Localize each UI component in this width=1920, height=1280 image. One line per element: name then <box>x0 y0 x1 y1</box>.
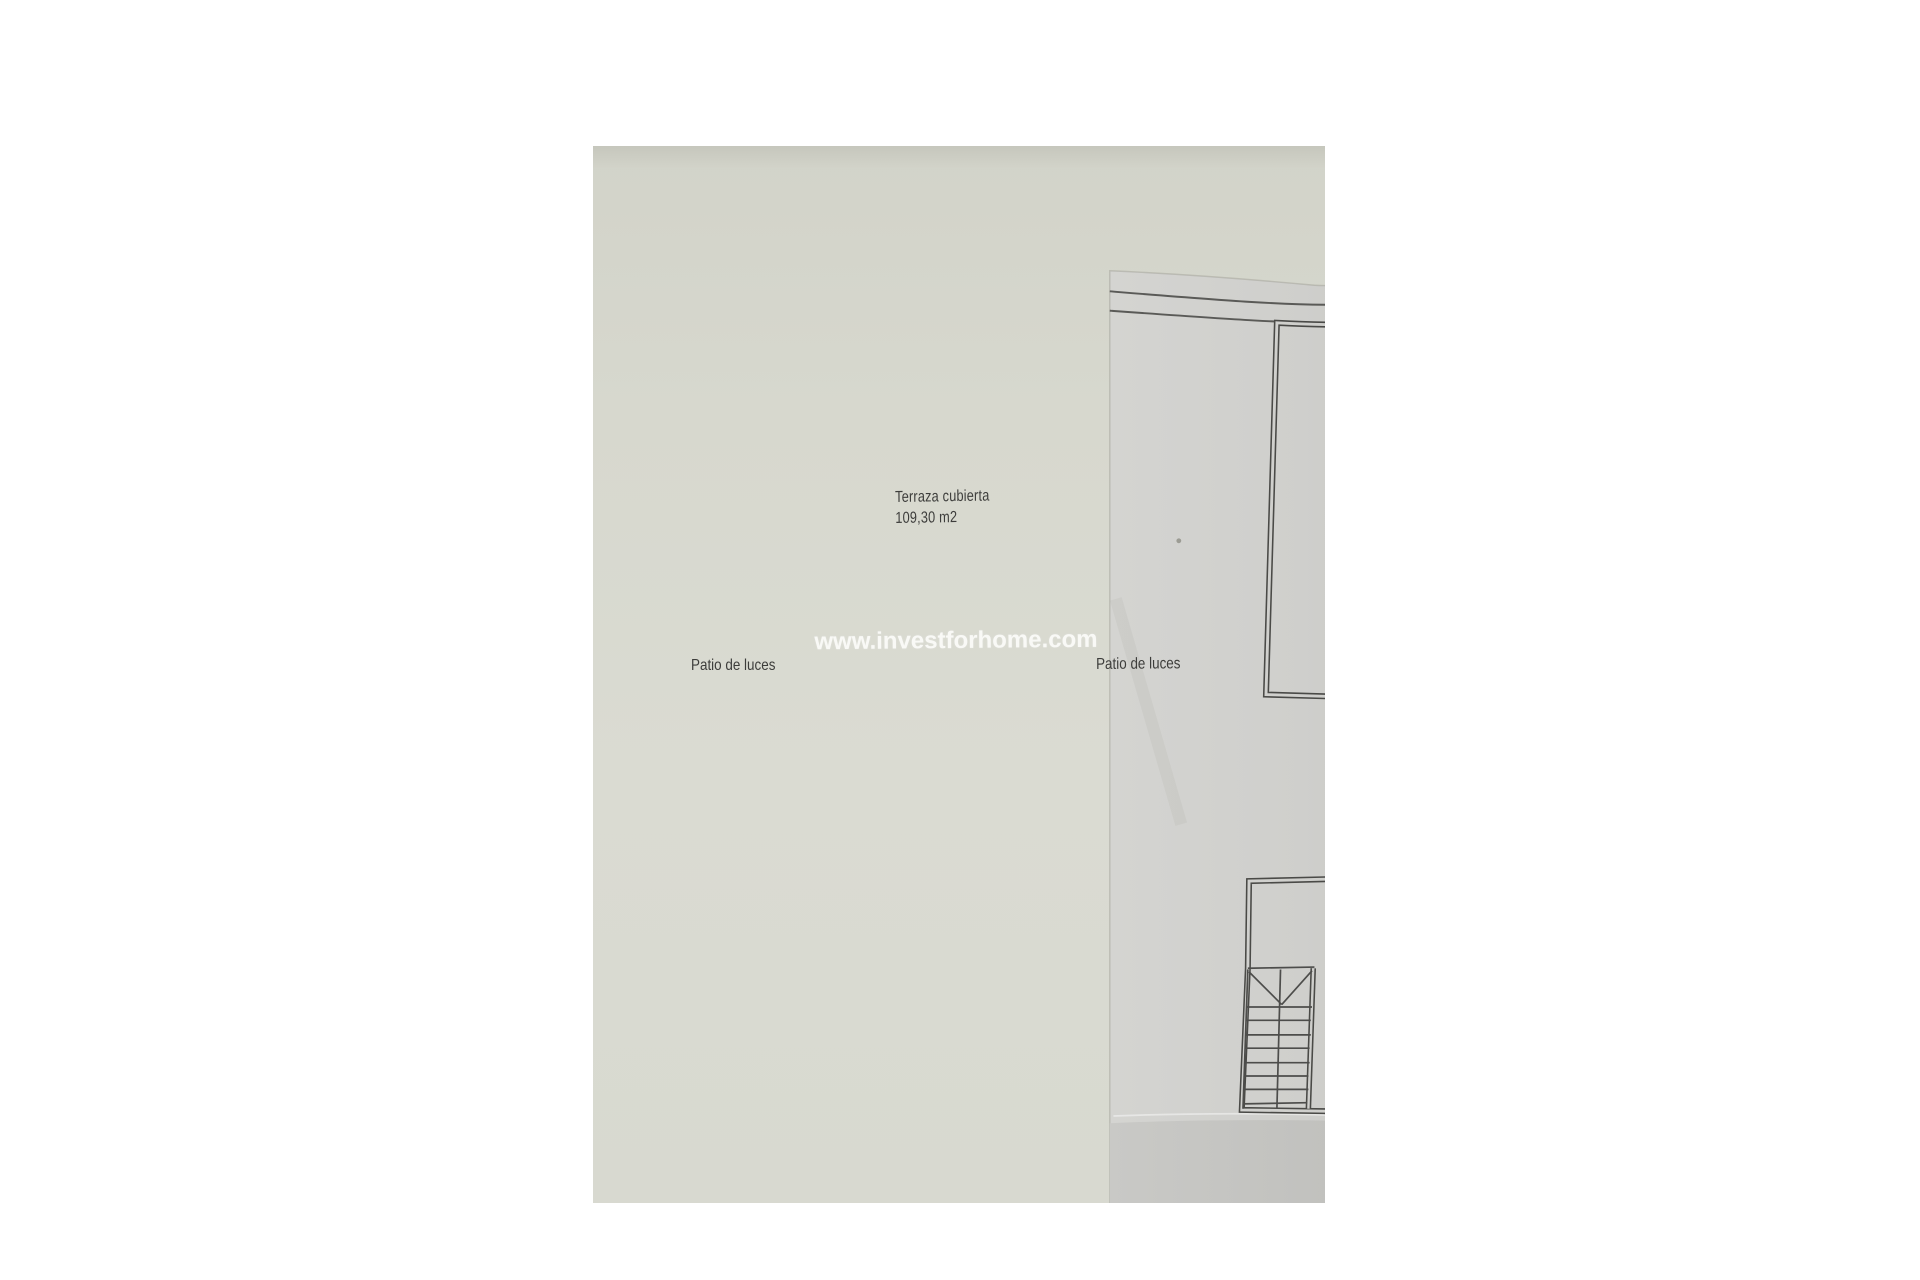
patio-right-label: Patio de luces <box>1096 655 1181 674</box>
terrace-area-label: Terraza cubierta 109,30 m2 <box>895 486 990 529</box>
paper-sheet <box>1110 259 1325 1203</box>
photo-specks <box>1176 205 1325 574</box>
terrace-outline <box>1242 317 1325 1124</box>
photo-top-vignette <box>593 146 1325 168</box>
plot-boundary-lines <box>1110 280 1325 1203</box>
page: Terraza cubierta 109,30 m2 Patio de luce… <box>0 0 1920 1280</box>
terrace-area-size: 109,30 m2 <box>895 507 990 529</box>
patio-left-label: Patio de luces <box>691 657 775 675</box>
watermark-text: www.investforhome.com <box>814 626 1097 656</box>
terrace-area-name: Terraza cubierta <box>895 486 990 508</box>
paper-lower-fold <box>1110 1108 1325 1203</box>
staircase-symbol <box>1243 967 1314 1109</box>
